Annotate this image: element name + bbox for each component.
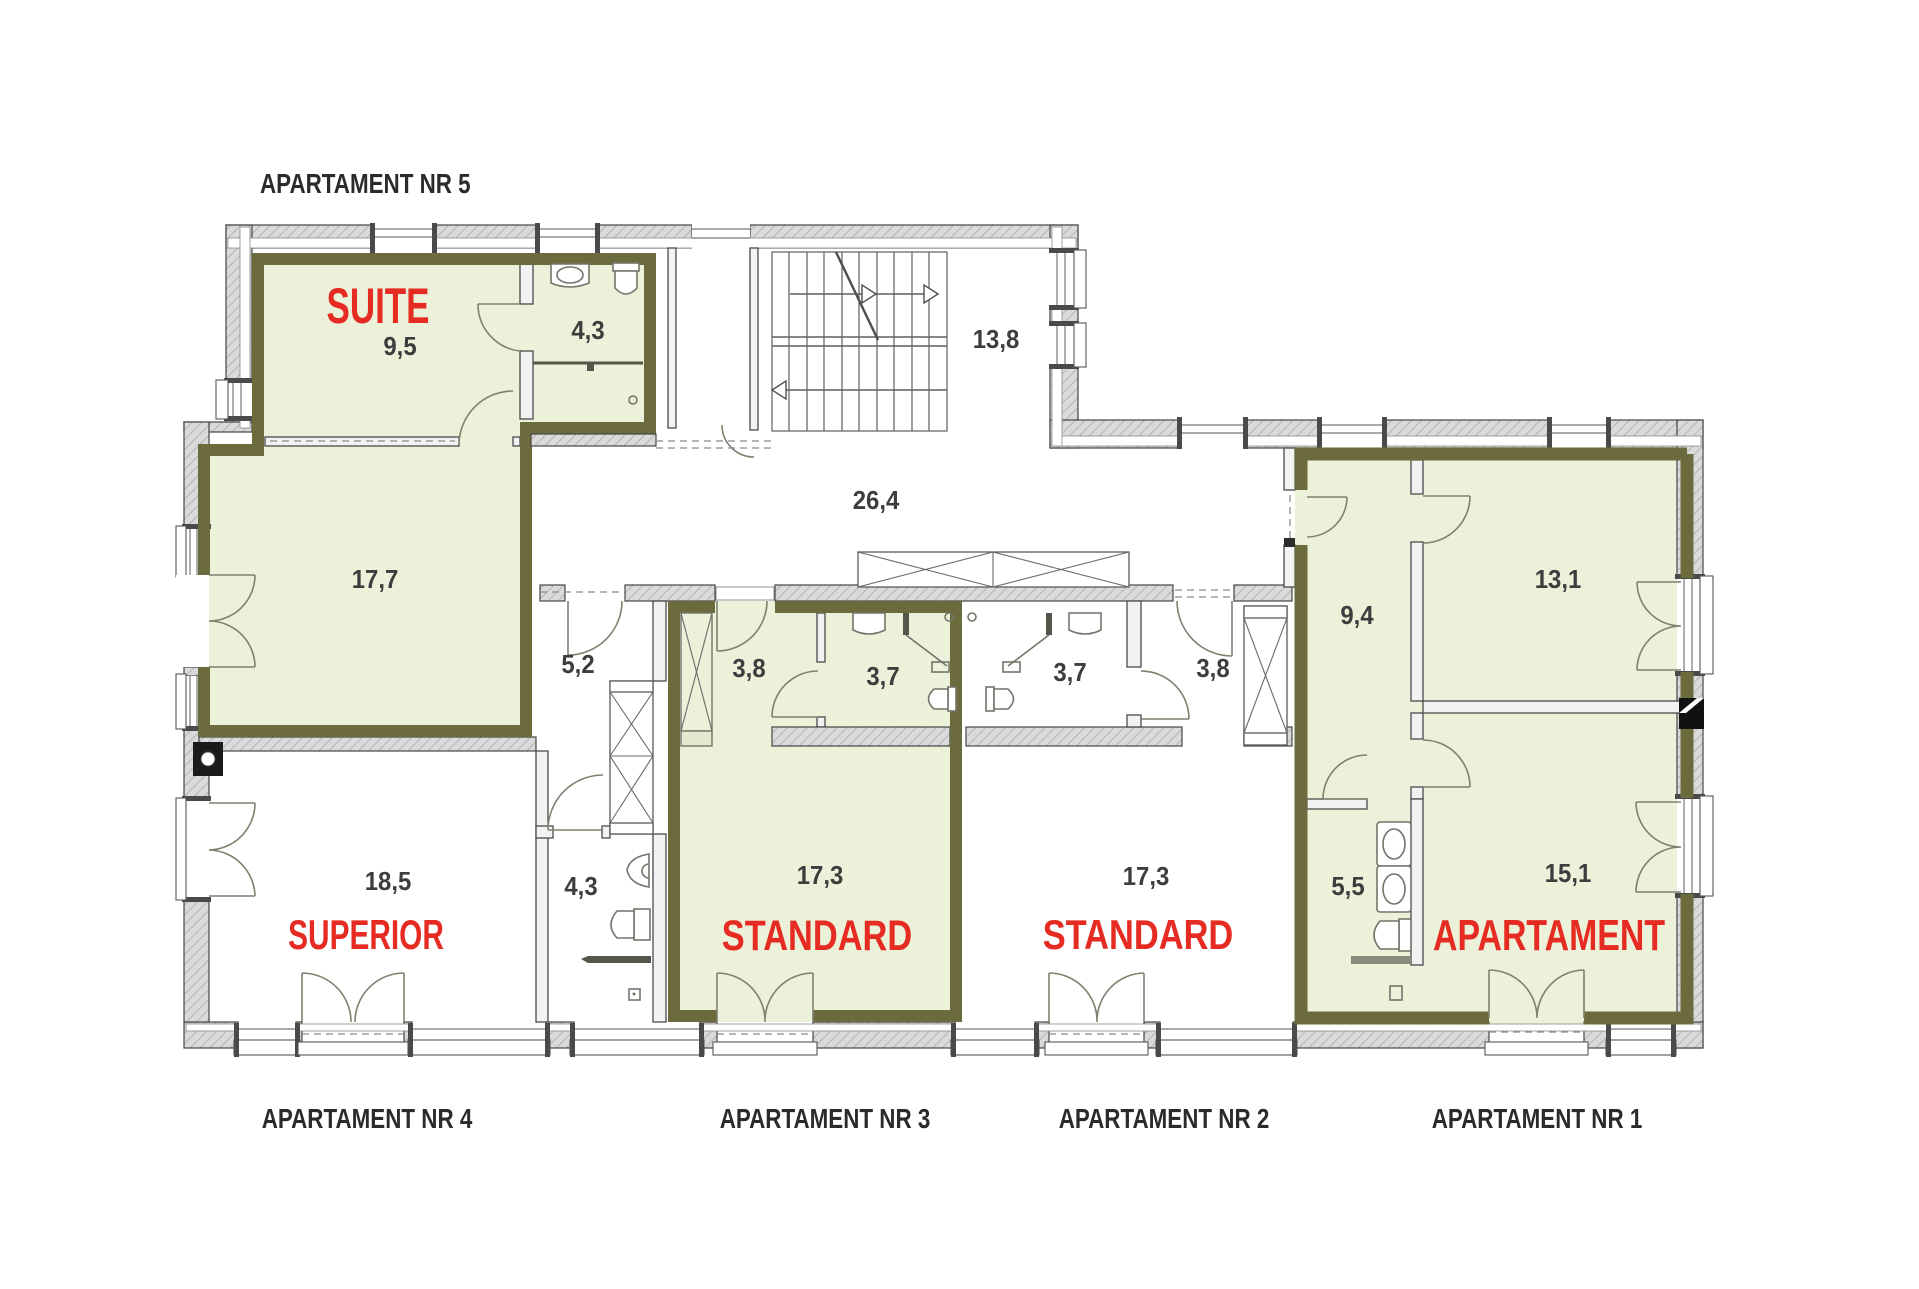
svg-text:3,8: 3,8 <box>1196 654 1229 683</box>
svg-text:9,4: 9,4 <box>1340 601 1373 630</box>
svg-text:APARTAMENT: APARTAMENT <box>1433 911 1665 960</box>
svg-text:18,5: 18,5 <box>365 867 412 896</box>
svg-text:15,1: 15,1 <box>1545 859 1592 888</box>
svg-text:APARTAMENT NR 3: APARTAMENT NR 3 <box>720 1104 931 1135</box>
svg-text:APARTAMENT NR 4: APARTAMENT NR 4 <box>262 1104 473 1135</box>
svg-text:9,5: 9,5 <box>383 332 416 361</box>
svg-text:3,7: 3,7 <box>1053 658 1086 687</box>
svg-text:APARTAMENT NR 2: APARTAMENT NR 2 <box>1059 1104 1270 1135</box>
svg-text:13,1: 13,1 <box>1535 565 1582 594</box>
svg-text:4,3: 4,3 <box>564 872 597 901</box>
svg-text:13,8: 13,8 <box>973 325 1020 354</box>
svg-text:3,8: 3,8 <box>732 654 765 683</box>
svg-text:APARTAMENT NR 1: APARTAMENT NR 1 <box>1432 1104 1643 1135</box>
svg-text:STANDARD: STANDARD <box>1043 912 1234 959</box>
svg-text:5,2: 5,2 <box>561 650 594 679</box>
svg-text:17,3: 17,3 <box>1123 862 1170 891</box>
svg-text:STANDARD: STANDARD <box>722 912 912 959</box>
svg-text:4,3: 4,3 <box>571 316 604 345</box>
svg-text:17,3: 17,3 <box>797 861 844 890</box>
svg-text:5,5: 5,5 <box>1331 872 1364 901</box>
svg-text:17,7: 17,7 <box>352 565 399 594</box>
svg-text:3,7: 3,7 <box>866 662 899 691</box>
svg-text:APARTAMENT NR 5: APARTAMENT NR 5 <box>260 169 471 200</box>
svg-text:SUITE: SUITE <box>326 279 429 335</box>
svg-text:SUPERIOR: SUPERIOR <box>288 911 444 958</box>
svg-text:26,4: 26,4 <box>853 486 900 515</box>
